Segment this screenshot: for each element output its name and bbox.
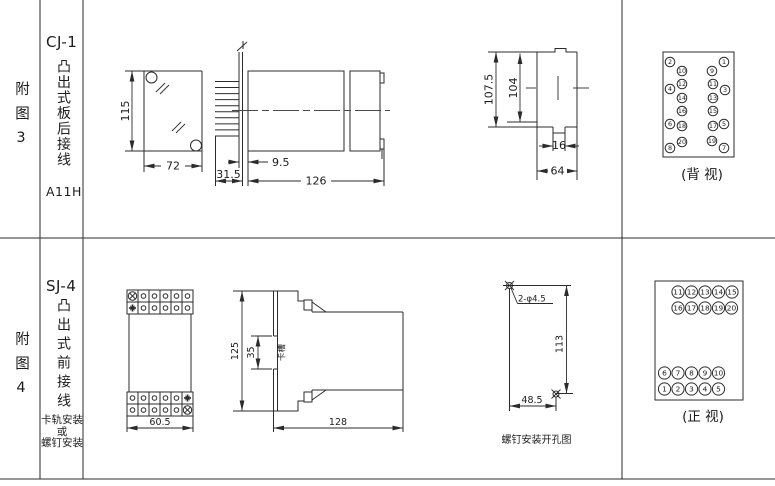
hatch-marks <box>156 83 185 133</box>
front-pin-group: 1112131415161718192067891012345 <box>658 286 738 395</box>
terminal-screw-icon <box>152 306 157 311</box>
terminal-screw-icon <box>185 306 190 311</box>
pin-7-number: 7 <box>722 144 726 152</box>
pin-14-number: 14 <box>678 94 686 102</box>
terminal-outline <box>663 52 734 157</box>
pin-16-number: 16 <box>673 304 683 313</box>
terminal-screw-icon <box>152 294 157 299</box>
terminal-screw-icon <box>174 396 179 401</box>
pin-13-number: 13 <box>700 288 710 297</box>
fig4-model-label: SJ-4 <box>46 277 76 295</box>
dim-31.5: 31.5 <box>216 168 241 181</box>
pin-20-number: 20 <box>727 304 737 313</box>
dim-107.5: 107.5 <box>483 74 496 106</box>
pin-12-number: 12 <box>687 288 696 297</box>
pin-15-number: 15 <box>727 288 737 297</box>
pin-8-number: 8 <box>668 144 672 152</box>
pin-3-number: 3 <box>689 385 694 394</box>
terminal-screw-icon <box>141 408 146 413</box>
pin-10-number: 10 <box>714 369 724 378</box>
terminal-screw-icon <box>152 408 157 413</box>
center-marks <box>526 76 589 100</box>
pin-9-number: 9 <box>710 67 714 75</box>
pin-10-number: 10 <box>678 67 686 75</box>
fig4-drill-view: 2-φ4.5 113 48.5 螺钉安装开孔图 <box>502 281 574 446</box>
terminal-screw-icon <box>163 294 168 299</box>
pin-7-number: 7 <box>676 369 681 378</box>
pin-18-number: 18 <box>678 122 686 130</box>
pin-15-number: 15 <box>709 107 717 115</box>
pin-2-number: 2 <box>676 385 681 394</box>
fig3-side-view: 9.5 31.5 126 <box>215 41 390 188</box>
fig4-mount-type-label: 凸出式前接线 <box>53 298 73 412</box>
fig4-side-view: 125 35 卡槽 128 <box>230 291 403 432</box>
pin-6-number: 6 <box>662 369 667 378</box>
dim-35: 35 <box>246 346 257 358</box>
hole-callout: 2-φ4.5 <box>518 295 546 305</box>
dim-115: 115 <box>119 101 132 122</box>
terminal-screw-icon <box>152 396 157 401</box>
pin-3-number: 3 <box>723 86 727 94</box>
sheet-grid <box>0 0 775 479</box>
terminal-screw-icon <box>141 294 146 299</box>
pin-17-number: 17 <box>687 304 697 313</box>
fig3-code-label: A11H <box>46 184 82 199</box>
fig4-mount-note: 卡轨安装 或 螺钉安装 <box>39 415 85 450</box>
rear-view-caption: (背 视) <box>681 167 723 183</box>
terminal-screw-icon <box>130 396 135 401</box>
terminal-screw-icon <box>174 294 179 299</box>
terminal-screw-icon <box>163 408 168 413</box>
pin-19-number: 19 <box>708 137 716 145</box>
rear-pin-group: 2110912114314131615651817201987 <box>665 57 730 153</box>
drawing-sheet: 115 72 9.5 31.5 126 <box>0 0 775 486</box>
pin-11-number: 11 <box>709 80 717 88</box>
pin-12-number: 12 <box>678 80 686 88</box>
fig3-mount-type-label: 凸出式板后接线 <box>53 59 73 168</box>
dim-9.5: 9.5 <box>272 156 290 169</box>
pin-17-number: 17 <box>709 122 717 130</box>
terminal-grid <box>138 290 182 416</box>
dim-48.5: 48.5 <box>521 395 542 406</box>
pin-comb <box>215 82 239 136</box>
slot-label: 卡槽 <box>277 344 288 362</box>
terminal-screw-icon <box>185 294 190 299</box>
fig3-model-label: CJ-1 <box>46 33 77 51</box>
rear-block <box>350 71 380 151</box>
drill-view-caption: 螺钉安装开孔图 <box>502 433 572 446</box>
pin-8-number: 8 <box>689 369 694 378</box>
dim-126: 126 <box>306 175 327 188</box>
fig3-rear-terminal-view: 2110912114314131615651817201987 (背 视) <box>663 52 734 183</box>
pin-1-number: 1 <box>662 385 667 394</box>
dim-60.5: 60.5 <box>149 417 170 428</box>
pin-1-number: 1 <box>722 58 726 66</box>
pin-19-number: 19 <box>714 304 724 313</box>
drill-hole-top <box>505 281 514 290</box>
terminal-outline <box>655 281 743 400</box>
fig4-front-terminal-view: 1112131415161718192067891012345 (正 视) <box>655 281 743 425</box>
terminal-screw-icon <box>141 306 146 311</box>
pin-6-number: 6 <box>668 120 672 128</box>
relay-body <box>248 71 344 151</box>
terminal-screw-icon <box>174 408 179 413</box>
technical-drawing-canvas: 115 72 9.5 31.5 126 <box>0 0 775 486</box>
pin-14-number: 14 <box>714 288 724 297</box>
mounting-hole <box>146 72 157 83</box>
dim-128: 128 <box>329 417 347 428</box>
fig3-panel-cutout-view: 107.5 104 16 64 <box>483 49 590 181</box>
fig4-row-label: 附图4 <box>11 331 32 406</box>
relay-case <box>129 314 191 392</box>
pin-11-number: 11 <box>673 288 683 297</box>
pin-5-number: 5 <box>722 120 726 128</box>
pin-4-number: 4 <box>668 85 672 93</box>
pin-20-number: 20 <box>678 138 686 146</box>
front-view-caption: (正 视) <box>682 409 724 425</box>
pin-5-number: 5 <box>716 385 721 394</box>
terminal-screw-icon <box>163 396 168 401</box>
dim-72: 72 <box>166 160 180 173</box>
terminal-screw-icon <box>174 306 179 311</box>
fig3-row-label: 附图3 <box>11 81 32 156</box>
pin-2-number: 2 <box>668 58 672 66</box>
terminal-screw-icon <box>163 306 168 311</box>
pin-4-number: 4 <box>703 385 708 394</box>
pin-13-number: 13 <box>709 94 717 102</box>
terminal-screw-icon <box>141 396 146 401</box>
dim-16: 16 <box>552 139 566 152</box>
fig3-front-view: 115 72 <box>119 71 202 173</box>
pin-18-number: 18 <box>700 304 710 313</box>
pin-9-number: 9 <box>703 369 708 378</box>
dim-104: 104 <box>507 78 520 99</box>
fig4-front-view: 60.5 <box>127 290 193 432</box>
dim-113: 113 <box>555 335 566 353</box>
dim-125: 125 <box>230 342 241 360</box>
mounting-hole <box>191 140 202 151</box>
terminal-screw-icon <box>130 408 135 413</box>
dim-64: 64 <box>551 165 565 178</box>
pin-16-number: 16 <box>678 107 686 115</box>
